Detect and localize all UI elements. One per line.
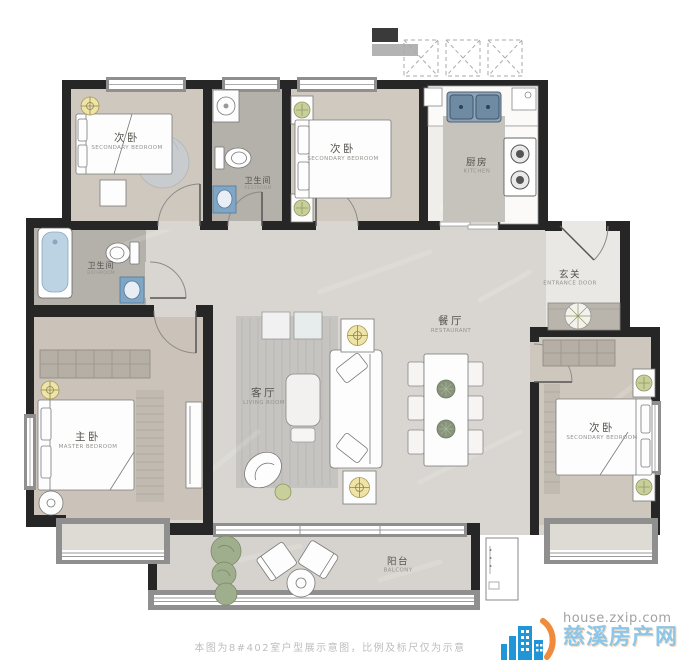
room-name-zh: 次卧 <box>307 144 378 156</box>
tv-cabinet <box>186 402 202 488</box>
room-name-zh: 餐厅 <box>431 316 471 328</box>
chair <box>467 362 483 386</box>
room-label-kitchen: 厨房 KITCHEN <box>464 159 491 176</box>
room-label-dining-room: 餐厅 RESTAURANT <box>431 316 471 334</box>
pillow <box>298 162 309 190</box>
nightstand <box>100 180 126 206</box>
room-name-en: SECONDARY BEDROOM <box>566 436 637 442</box>
room-name-zh: 厨房 <box>464 159 491 169</box>
plant-icon <box>215 583 237 605</box>
pillow <box>78 119 87 141</box>
ottoman <box>294 312 322 339</box>
pillow <box>641 405 650 433</box>
room-label-living-room: 客厅 LIVING ROOM <box>243 388 285 406</box>
watermark-url: house.zxip.com <box>563 612 672 625</box>
chair <box>467 396 483 420</box>
sink-icon <box>120 277 144 303</box>
room-name-zh: 次卧 <box>91 133 162 145</box>
room-name-en: MASTER BEDROOM <box>59 445 118 451</box>
pillow <box>41 446 51 478</box>
appliance <box>512 88 536 110</box>
room-name-en: KITCHEN <box>464 170 491 176</box>
room-name-zh: 客厅 <box>243 388 285 400</box>
room-name-zh: 次卧 <box>566 423 637 435</box>
chair <box>408 362 424 386</box>
ottoman <box>262 312 290 339</box>
bathtub-icon <box>38 228 72 298</box>
disclaimer-text: 本图为8#402室户型展示意图，比例及标尺仅为示意 <box>140 639 520 654</box>
room-label-master-bedroom: 主卧 MASTER BEDROOM <box>59 432 118 450</box>
chair <box>408 396 424 420</box>
plant-icon <box>211 536 241 566</box>
room-label-balcony: 阳台 BALCONY <box>383 558 412 575</box>
stove-icon <box>504 138 536 196</box>
plant-icon <box>212 562 236 586</box>
room-name-en: ENTRANCE DOOR <box>543 282 596 288</box>
dining-furniture <box>408 354 483 466</box>
room-name-zh: 玄关 <box>543 271 596 281</box>
room-label-bedroom-top-middle: 次卧 SECONDARY BEDROOM <box>307 144 378 162</box>
overhead-cabinet-dashed-symbols <box>404 40 522 76</box>
plant-icon <box>348 326 368 346</box>
room-name-en: BATHROOM <box>87 272 115 277</box>
pillow <box>78 145 87 167</box>
room-name-zh: 卫生间 <box>87 262 115 271</box>
balcony-window <box>148 590 480 610</box>
room-name-en: SECONDARY BEDROOM <box>91 146 162 152</box>
room-label-bedroom-right: 次卧 SECONDARY BEDROOM <box>566 423 637 441</box>
flue <box>372 28 398 42</box>
room-name-en: BALCONY <box>383 569 412 575</box>
chair <box>467 430 483 454</box>
room-name-zh: 卫生间 <box>244 177 271 186</box>
floor-plan-canvas <box>0 0 680 666</box>
sink-icon <box>213 186 236 213</box>
balcony-table <box>287 569 315 597</box>
plant-icon <box>437 380 455 398</box>
room-label-bathroom-left: 卫生间 BATHROOM <box>87 262 115 276</box>
plant-icon <box>437 420 455 438</box>
bay-window-bedroom-right <box>544 518 658 564</box>
room-name-en: SECONDARY BEDROOM <box>307 157 378 163</box>
entrance-furniture <box>548 303 620 330</box>
pillow <box>41 408 51 440</box>
flue-ledge <box>372 44 418 56</box>
room-label-bedroom-top-left: 次卧 SECONDARY BEDROOM <box>91 133 162 151</box>
window-top-3 <box>297 77 377 92</box>
plant-icon <box>350 478 370 498</box>
window-top-1 <box>106 77 186 92</box>
ceiling-light-icon <box>41 381 59 399</box>
wall-cabinet <box>424 88 442 106</box>
round-nightstand <box>39 491 63 515</box>
watermark-site-name: 慈溪房产网 <box>563 625 678 650</box>
coffee-table <box>286 374 320 442</box>
pillow <box>641 439 650 467</box>
room-label-entrance: 玄关 ENTRANCE DOOR <box>543 271 596 288</box>
dining-table <box>424 354 468 466</box>
floor-plan-page: 次卧 SECONDARY BEDROOM 卫生间 RESTROOM 次卧 SEC… <box>0 0 680 666</box>
room-name-zh: 阳台 <box>383 558 412 568</box>
room-name-en: RESTAURANT <box>431 329 471 335</box>
toilet-icon <box>215 147 251 169</box>
equipment-platform <box>486 538 518 600</box>
plant-icon <box>565 303 591 329</box>
window-master-left <box>24 414 36 490</box>
room-name-zh: 主卧 <box>59 432 118 444</box>
ceiling-light-icon <box>81 97 99 115</box>
site-watermark: house.zxip.com 慈溪房产网 <box>499 612 678 662</box>
double-sink-icon <box>447 92 501 122</box>
plant-icon <box>275 484 291 500</box>
sofa <box>330 350 382 468</box>
chair <box>408 430 424 454</box>
sliding-door-living-balcony <box>213 523 467 537</box>
room-name-en: LIVING ROOM <box>243 401 285 407</box>
room-label-restroom-top: 卫生间 RESTROOM <box>244 177 271 191</box>
site-logo-icon <box>499 616 559 662</box>
room-name-en: RESTROOM <box>244 187 271 192</box>
bay-window-master <box>56 518 170 564</box>
